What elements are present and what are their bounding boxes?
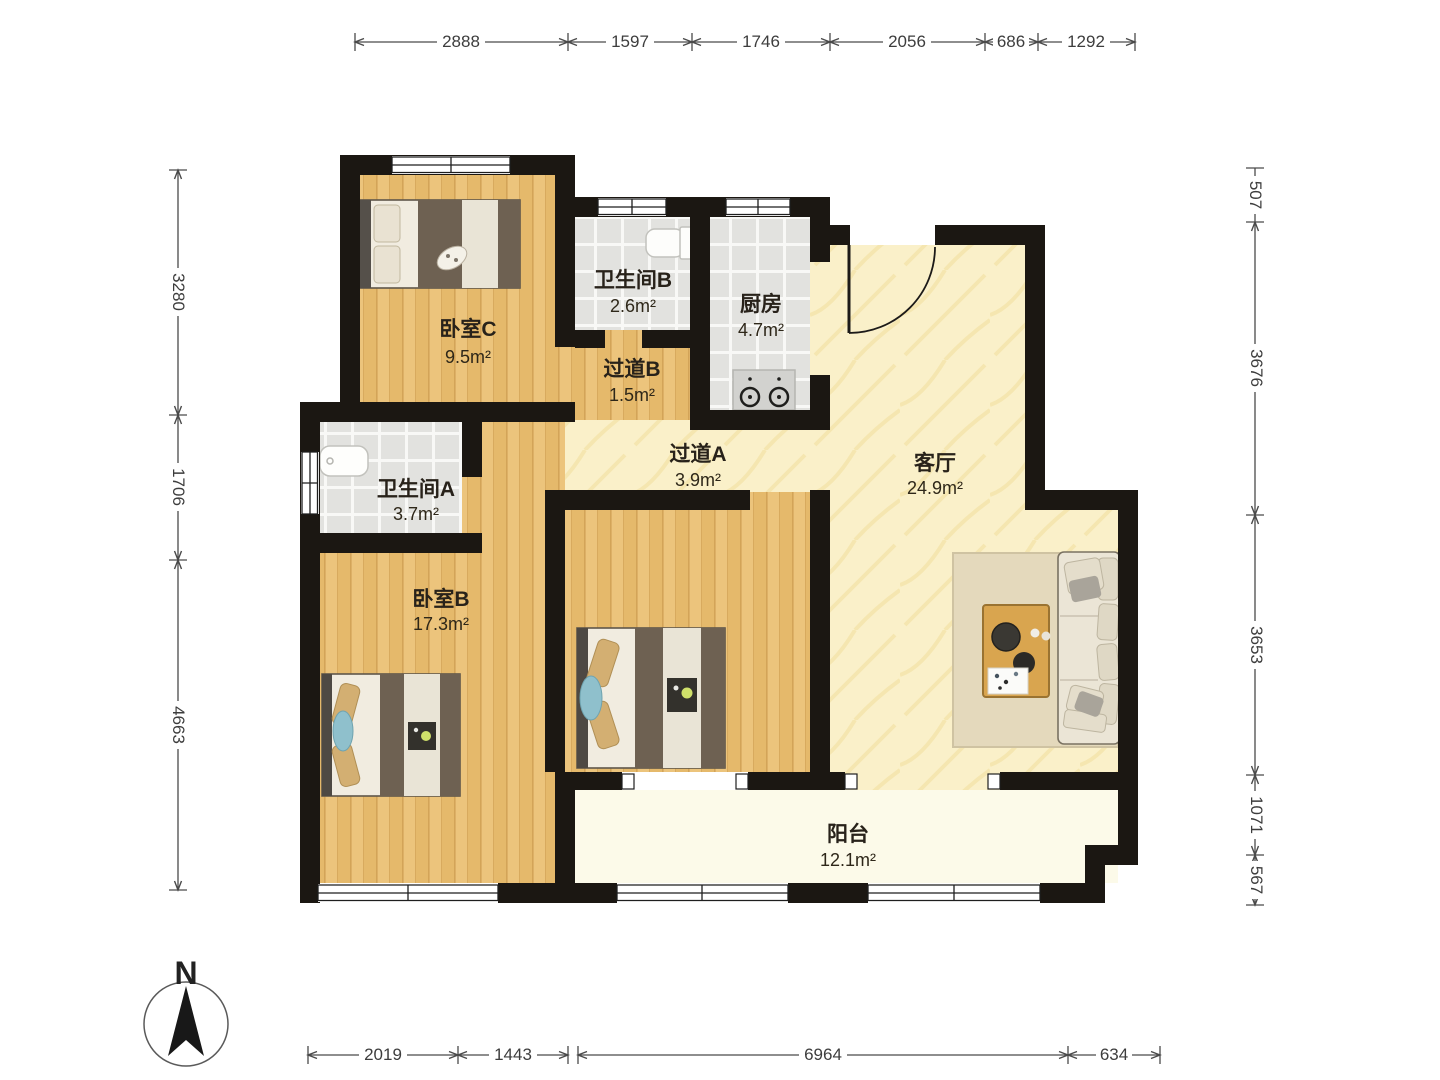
compass: N [144, 955, 228, 1066]
bed-middle-bedroom [577, 628, 725, 768]
dim-top-2: 1746 [742, 32, 780, 51]
dim-left-0: 3280 [169, 273, 188, 311]
bathroom-a-doorway-floor [462, 477, 482, 535]
middle-bedroom-doorway-floor [750, 492, 810, 510]
room-label-living-room: 客厅 [914, 451, 956, 475]
floor-plan-canvas: 卧室C 9.5m² 卫生间B 2.6m² 厨房 4.7m² 过道B 1.5m² … [0, 0, 1440, 1080]
toilet [646, 227, 692, 259]
room-label-bathroom-a: 卫生间A [377, 477, 455, 501]
dim-right-0: 507 [1246, 181, 1265, 209]
room-label-bathroom-b: 卫生间B [594, 268, 672, 292]
dim-left-1: 1706 [169, 468, 188, 506]
window-balcony-left [617, 884, 788, 902]
room-area-hallway-b: 1.5m² [609, 385, 655, 405]
window-bathroom-b [598, 198, 666, 216]
room-area-bathroom-a: 3.7m² [393, 504, 439, 524]
dim-bottom-1: 1443 [494, 1045, 532, 1064]
window-bedroom-c [392, 156, 510, 174]
room-area-hallway-a: 3.9m² [675, 470, 721, 490]
slider-frame-icon [988, 774, 1000, 789]
room-label-bedroom-b: 卧室B [412, 587, 469, 611]
room-label-kitchen: 厨房 [740, 292, 782, 316]
bed-bedroom-c [360, 200, 520, 288]
slider-frame-icon [845, 774, 857, 789]
stove [733, 370, 795, 410]
bed-bedroom-b [322, 674, 460, 796]
coffee-table [983, 605, 1051, 697]
room-area-kitchen: 4.7m² [738, 320, 784, 340]
dimension-chain-left: 3280 1706 4663 [169, 170, 188, 890]
window-kitchen [726, 198, 790, 216]
dim-top-4: 686 [997, 32, 1025, 51]
dim-right-2: 3653 [1247, 626, 1266, 664]
room-area-bathroom-b: 2.6m² [610, 296, 656, 316]
dimension-chain-right: 507 3676 3653 1071 567 [1246, 168, 1266, 905]
dim-bottom-2: 6964 [804, 1045, 842, 1064]
dim-top-5: 1292 [1067, 32, 1105, 51]
dim-bottom-3: 634 [1100, 1045, 1128, 1064]
dim-top-3: 2056 [888, 32, 926, 51]
dimension-chain-bottom: 2019 1443 6964 634 [308, 1045, 1160, 1064]
dim-right-3: 1071 [1247, 796, 1266, 834]
dim-right-4: 567 [1247, 866, 1266, 894]
window-bedroom-b [318, 884, 498, 902]
room-label-hallway-b: 过道B [603, 357, 660, 381]
room-area-bedroom-c: 9.5m² [445, 347, 491, 367]
room-label-balcony: 阳台 [827, 822, 869, 846]
dim-right-1: 3676 [1247, 349, 1266, 387]
dim-top-0: 2888 [442, 32, 480, 51]
room-area-balcony: 12.1m² [820, 850, 876, 870]
floor-plan-page: 卧室C 9.5m² 卫生间B 2.6m² 厨房 4.7m² 过道B 1.5m² … [0, 0, 1440, 1080]
dimension-chain-top: 2888 1597 1746 2056 686 1292 [355, 32, 1135, 51]
bathtub [320, 446, 368, 476]
room-label-bedroom-c: 卧室C [439, 317, 496, 341]
dim-top-1: 1597 [611, 32, 649, 51]
room-label-hallway-a: 过道A [669, 442, 726, 466]
room-area-living-room: 24.9m² [907, 478, 963, 498]
sofa [1058, 552, 1120, 744]
slider-frame-icon [736, 774, 748, 789]
dim-bottom-0: 2019 [364, 1045, 402, 1064]
room-area-bedroom-b: 17.3m² [413, 614, 469, 634]
slider-frame-icon [622, 774, 634, 789]
window-balcony-right [868, 884, 1040, 902]
window-bathroom-a [301, 452, 319, 514]
dim-left-2: 4663 [169, 706, 188, 744]
compass-north-label: N [174, 955, 197, 991]
